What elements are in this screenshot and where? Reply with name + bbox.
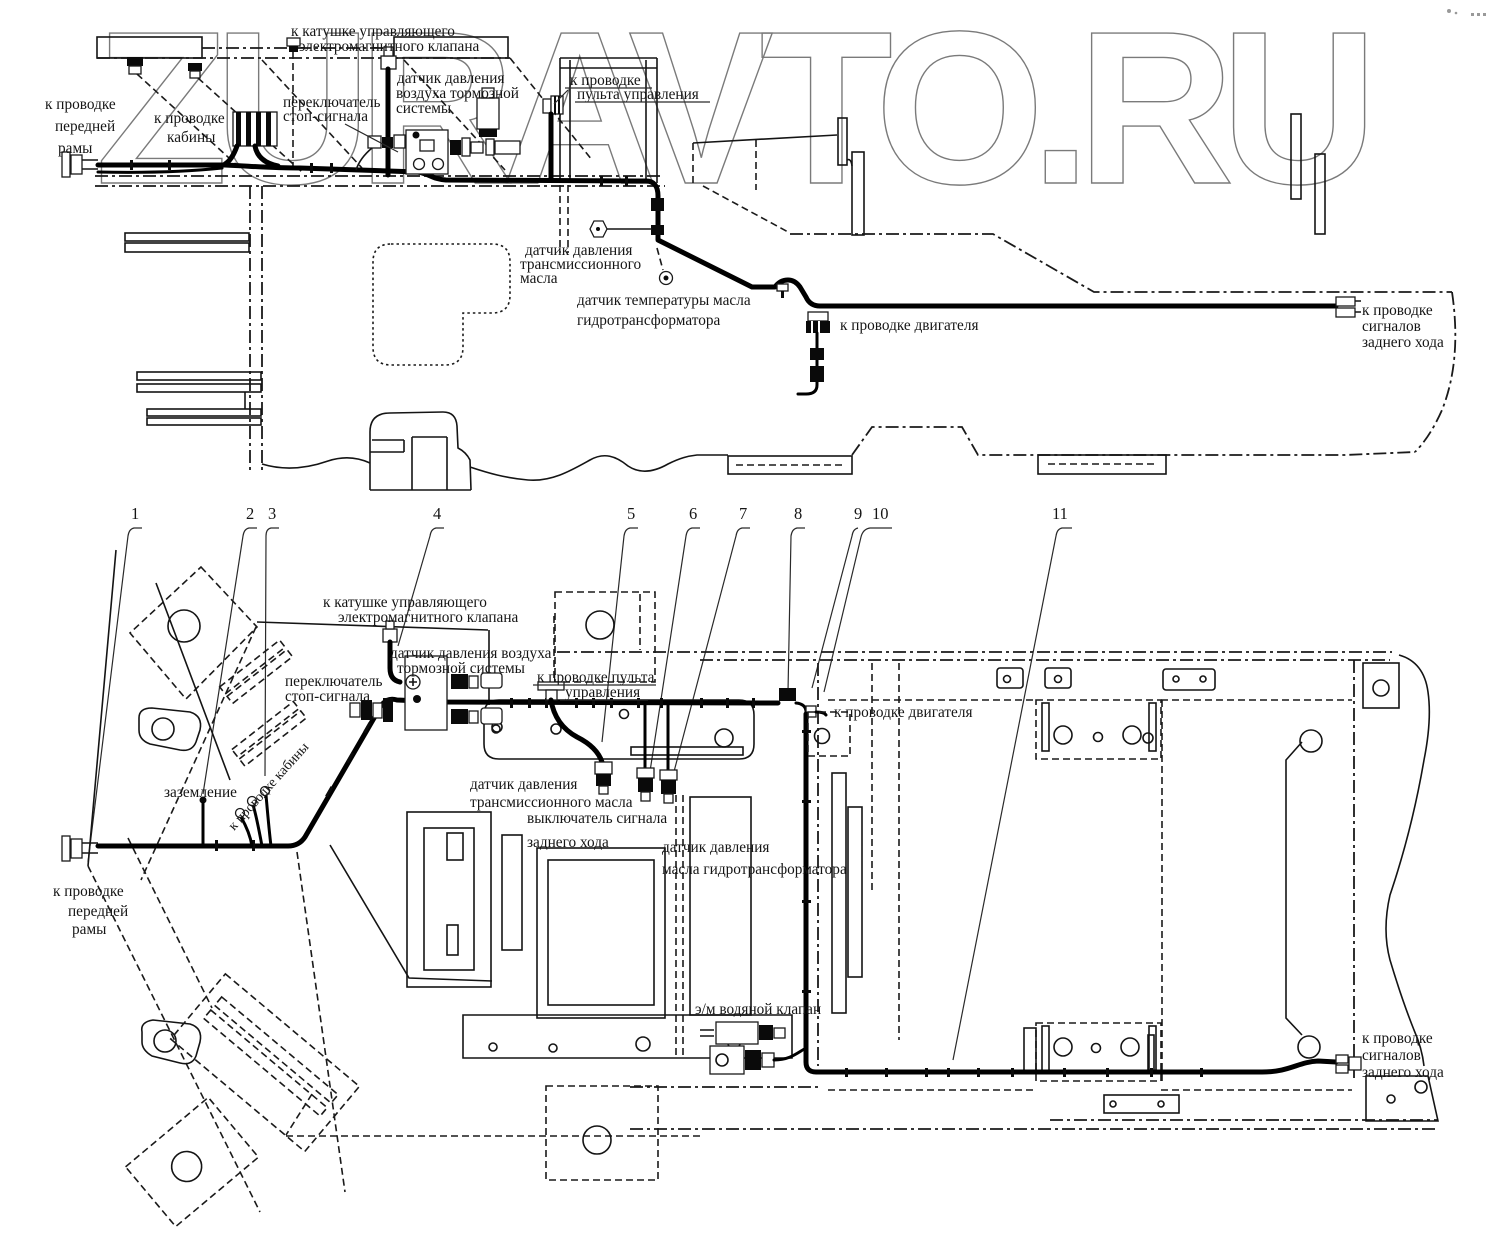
- svg-text:к проводке двигателя: к проводке двигателя: [834, 704, 973, 721]
- svg-text:9: 9: [854, 504, 862, 523]
- svg-text:11: 11: [1052, 504, 1068, 523]
- svg-text:сигналов: сигналов: [1362, 1047, 1421, 1064]
- svg-text:электромагнитного клапана: электромагнитного клапана: [299, 38, 480, 55]
- svg-text:стоп-сигнала: стоп-сигнала: [283, 108, 368, 125]
- svg-text:5: 5: [627, 504, 635, 523]
- svg-text:масла гидротрансформатора: масла гидротрансформатора: [662, 861, 847, 878]
- svg-text:4: 4: [433, 504, 441, 523]
- svg-text:сигналов: сигналов: [1362, 318, 1421, 335]
- svg-text:заземление: заземление: [164, 784, 237, 801]
- svg-text:системы: системы: [396, 100, 451, 117]
- svg-text:э/м водяной клапан: э/м водяной клапан: [695, 1001, 821, 1018]
- svg-text:к проводке: к проводке: [154, 110, 225, 127]
- svg-text:электромагнитного клапана: электромагнитного клапана: [338, 609, 519, 626]
- svg-text:трансмиссионного масла: трансмиссионного масла: [470, 794, 633, 811]
- svg-text:2: 2: [246, 504, 254, 523]
- svg-text:к проводке: к проводке: [1362, 1030, 1433, 1047]
- svg-text:к проводке: к проводке: [45, 96, 116, 113]
- svg-text:8: 8: [794, 504, 802, 523]
- svg-text:управления: управления: [565, 684, 640, 701]
- svg-text:1: 1: [131, 504, 139, 523]
- svg-text:масла: масла: [520, 270, 558, 287]
- svg-text:к проводке: к проводке: [1362, 302, 1433, 319]
- svg-text:гидротрансформатора: гидротрансформатора: [577, 312, 721, 329]
- svg-text:3: 3: [268, 504, 276, 523]
- svg-text:стоп-сигнала: стоп-сигнала: [285, 688, 370, 705]
- svg-text:7: 7: [739, 504, 747, 523]
- svg-text:заднего хода: заднего хода: [527, 834, 609, 851]
- svg-text:к проводке двигателя: к проводке двигателя: [840, 317, 979, 334]
- svg-text:заднего хода: заднего хода: [1362, 334, 1444, 351]
- svg-text:передней: передней: [55, 118, 115, 135]
- svg-text:передней: передней: [68, 903, 128, 920]
- svg-text:датчик давления: датчик давления: [470, 776, 577, 793]
- svg-text:заднего хода: заднего хода: [1362, 1064, 1444, 1081]
- svg-text:тормозной системы: тормозной системы: [397, 660, 525, 677]
- svg-text:выключатель сигнала: выключатель сигнала: [527, 810, 667, 827]
- svg-text:датчик давления: датчик давления: [662, 839, 769, 856]
- svg-text:кабины: кабины: [167, 129, 215, 146]
- svg-text:рамы: рамы: [72, 921, 106, 938]
- svg-text:10: 10: [872, 504, 889, 523]
- svg-text:датчик температуры масла: датчик температуры масла: [577, 292, 751, 309]
- svg-text:рамы: рамы: [58, 140, 92, 157]
- svg-text:6: 6: [689, 504, 697, 523]
- svg-text:к проводке: к проводке: [53, 883, 124, 900]
